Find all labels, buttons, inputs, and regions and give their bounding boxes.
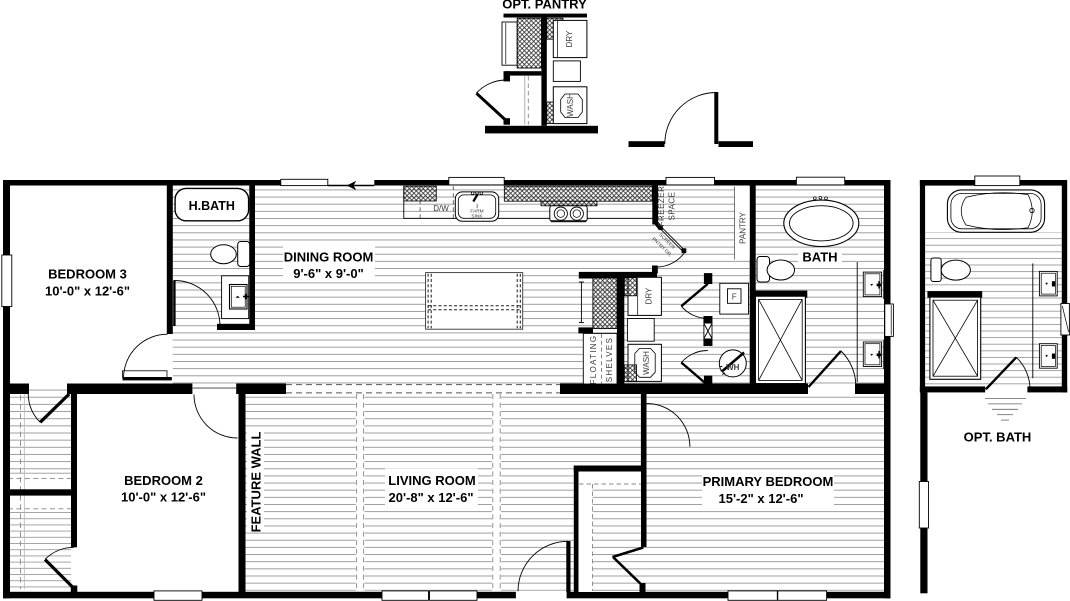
svg-text:F: F <box>732 293 737 302</box>
svg-text:BEDROOM 3: BEDROOM 3 <box>48 267 127 282</box>
svg-text:SPACE: SPACE <box>668 191 677 220</box>
svg-text:H.BATH: H.BATH <box>189 199 235 213</box>
svg-text:WH: WH <box>726 363 740 372</box>
svg-text:FLOATING: FLOATING <box>589 335 598 385</box>
svg-text:LIVING ROOM: LIVING ROOM <box>388 473 475 488</box>
svg-text:SHELVES: SHELVES <box>605 337 614 382</box>
svg-text:PRIMARY BEDROOM: PRIMARY BEDROOM <box>703 474 834 489</box>
svg-text:D/W: D/W <box>433 204 449 213</box>
svg-text:BEDROOM 2: BEDROOM 2 <box>124 473 203 488</box>
svg-text:DINING ROOM: DINING ROOM <box>284 250 374 265</box>
svg-text:10'-0" x 12'-6": 10'-0" x 12'-6" <box>45 284 130 299</box>
svg-text:20'-8" x 12'-6": 20'-8" x 12'-6" <box>388 490 473 505</box>
svg-text:DRY: DRY <box>565 30 574 47</box>
svg-text:OPT. BATH: OPT. BATH <box>964 430 1032 445</box>
svg-text:9'-6" x 9'-0": 9'-6" x 9'-0" <box>293 266 364 281</box>
svg-text:SINK: SINK <box>471 214 483 220</box>
svg-text:FEATURE WALL: FEATURE WALL <box>249 432 264 533</box>
svg-text:FREEZER: FREEZER <box>657 186 666 227</box>
svg-text:DRY: DRY <box>645 287 654 304</box>
svg-text:PANTRY: PANTRY <box>739 211 748 243</box>
svg-text:WASH: WASH <box>642 351 651 375</box>
svg-text:10'-0" x 12'-6": 10'-0" x 12'-6" <box>121 490 206 505</box>
svg-text:15'-2" x 12'-6": 15'-2" x 12'-6" <box>718 491 803 506</box>
svg-text:BATH: BATH <box>802 250 837 265</box>
svg-text:OPT. PANTRY: OPT. PANTRY <box>502 0 587 12</box>
svg-text:WASH: WASH <box>566 93 575 117</box>
